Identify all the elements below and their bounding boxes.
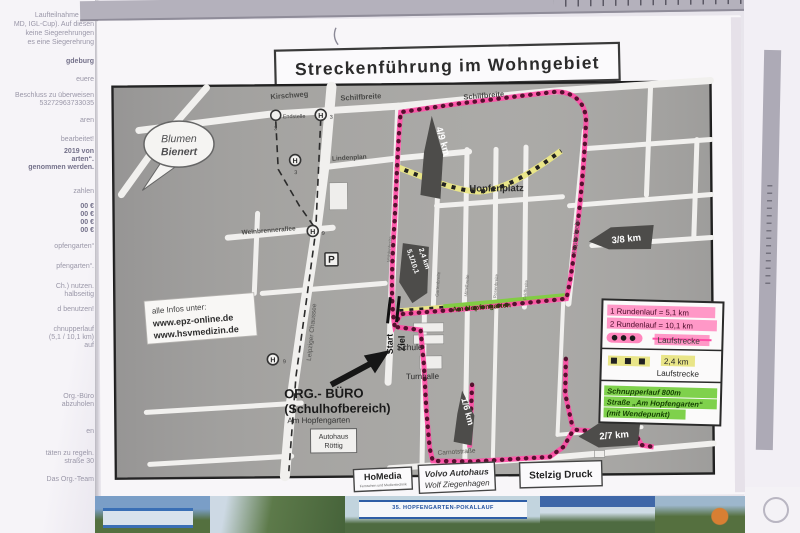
round-stamp bbox=[763, 497, 789, 523]
endstelle-icon bbox=[271, 110, 281, 120]
photo-segment bbox=[655, 496, 745, 533]
blue-sign bbox=[103, 508, 193, 528]
autohaus-roettig: Autohaus Röttig bbox=[310, 429, 356, 453]
svg-text:P: P bbox=[328, 255, 335, 266]
blumen-line2: Bienert bbox=[161, 146, 198, 158]
street-label-hopfenplatz: Hopfenplatz bbox=[469, 183, 524, 194]
tram-line-number: 3 bbox=[274, 126, 277, 132]
sponsor-volvo: Volvo Autohaus Wolf Ziegenhagen bbox=[418, 462, 495, 493]
legend-square bbox=[611, 358, 617, 364]
svg-text:9: 9 bbox=[283, 359, 286, 365]
photo-segment bbox=[95, 496, 210, 533]
sponsor-homedia: HoMedia Fernsehen und Medientechnik bbox=[353, 467, 412, 492]
org-line3: Am Hopfengarten bbox=[287, 416, 350, 426]
schule-label: Schule bbox=[397, 342, 423, 352]
org-line2: (Schulhofbereich) bbox=[284, 401, 390, 416]
legend-km24: 2,4 km bbox=[664, 357, 689, 367]
legend-square bbox=[639, 358, 645, 364]
photo-segment bbox=[210, 496, 345, 533]
route-map-page: Streckenführung im Wohngebiet bbox=[0, 0, 800, 533]
svg-text:3: 3 bbox=[294, 170, 297, 176]
turnhalle-label: Turnhalle bbox=[406, 372, 440, 381]
svg-text:H: H bbox=[318, 113, 323, 120]
stelzig-label: Stelzig Druck bbox=[529, 469, 593, 482]
photo-segment: 35. HOPFENGARTEN-POKALLAUF bbox=[345, 496, 540, 533]
parking-icon: P bbox=[325, 253, 338, 266]
legend-schnupper3: (mit Wendepunkt) bbox=[606, 408, 670, 419]
bottom-photo-strip: 35. HOPFENGARTEN-POKALLAUF bbox=[95, 496, 745, 533]
svg-text:3: 3 bbox=[330, 115, 333, 121]
svg-text:9: 9 bbox=[322, 231, 325, 237]
autohaus-line2: Röttig bbox=[324, 443, 342, 450]
info-box: alle Infos unter: www.epz-online.de www.… bbox=[144, 293, 257, 344]
title-box: Streckenführung im Wohngebiet bbox=[275, 43, 620, 88]
homedia-label: HoMedia bbox=[364, 470, 403, 482]
notice-board-photo: Laufteilnahme eine MD, IGL-Cup). Auf die… bbox=[0, 0, 800, 533]
blumen-line1: Blumen bbox=[161, 133, 197, 145]
svg-text:H: H bbox=[310, 229, 315, 236]
autohaus-line1: Autohaus bbox=[319, 434, 349, 441]
svg-text:H: H bbox=[293, 158, 298, 165]
legend-square bbox=[625, 358, 631, 364]
legend-laufstrecke1: Laufstrecke bbox=[657, 336, 700, 346]
endstelle-label: Endstelle bbox=[283, 114, 306, 120]
svg-text:H: H bbox=[270, 357, 275, 364]
bottom-right-paper bbox=[745, 487, 800, 533]
svg-text:2/7 km: 2/7 km bbox=[599, 429, 629, 442]
org-line1: ORG.- BÜRO bbox=[284, 385, 364, 401]
event-banner: 35. HOPFENGARTEN-POKALLAUF bbox=[359, 500, 527, 519]
photo-segment bbox=[540, 496, 655, 533]
legend: 1 Rundenlauf = 5,1 km 2 Rundenlauf = 10,… bbox=[599, 299, 723, 425]
legend-laufstrecke2: Laufstrecke bbox=[657, 369, 700, 379]
sponsor-stelzig: Stelzig Druck bbox=[520, 461, 603, 488]
